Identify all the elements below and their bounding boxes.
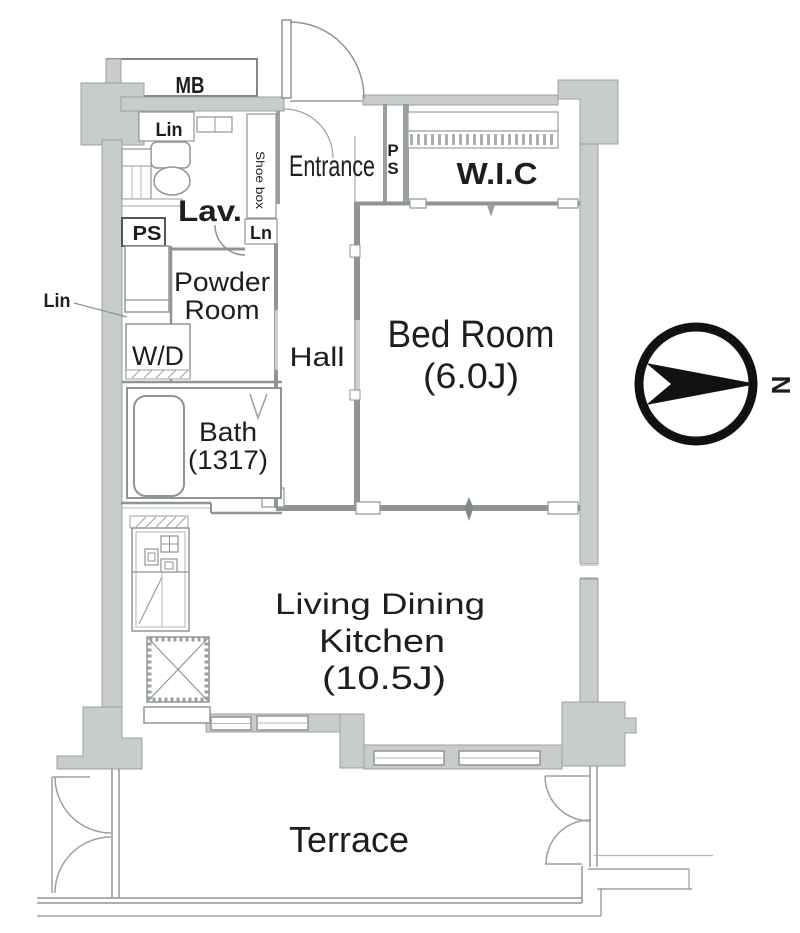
- svg-text:W/D: W/D: [132, 341, 184, 371]
- svg-text:Ln: Ln: [250, 223, 272, 243]
- svg-text:Lin: Lin: [44, 291, 71, 312]
- svg-text:Kitchen: Kitchen: [319, 623, 445, 659]
- svg-text:MB: MB: [176, 72, 205, 98]
- svg-text:(6.0J): (6.0J): [423, 357, 519, 396]
- svg-text:Bath: Bath: [199, 417, 257, 447]
- svg-text:Bed Room: Bed Room: [388, 314, 555, 356]
- svg-text:N: N: [766, 376, 796, 395]
- svg-text:W.I.C: W.I.C: [457, 156, 538, 191]
- svg-text:P: P: [387, 141, 398, 160]
- svg-text:PS: PS: [133, 223, 162, 245]
- svg-text:Living Dining: Living Dining: [275, 588, 485, 621]
- svg-text:Shoe box: Shoe box: [253, 151, 267, 209]
- svg-text:(10.5J): (10.5J): [322, 660, 446, 696]
- svg-text:Hall: Hall: [290, 342, 345, 372]
- svg-text:Powder: Powder: [174, 267, 270, 297]
- svg-text:Room: Room: [185, 295, 260, 325]
- svg-text:S: S: [387, 159, 398, 178]
- svg-text:Lav.: Lav.: [178, 195, 242, 228]
- svg-text:Lin: Lin: [156, 120, 183, 141]
- svg-text:(1317): (1317): [188, 445, 268, 475]
- svg-text:Terrace: Terrace: [289, 819, 409, 860]
- svg-text:Entrance: Entrance: [289, 150, 375, 183]
